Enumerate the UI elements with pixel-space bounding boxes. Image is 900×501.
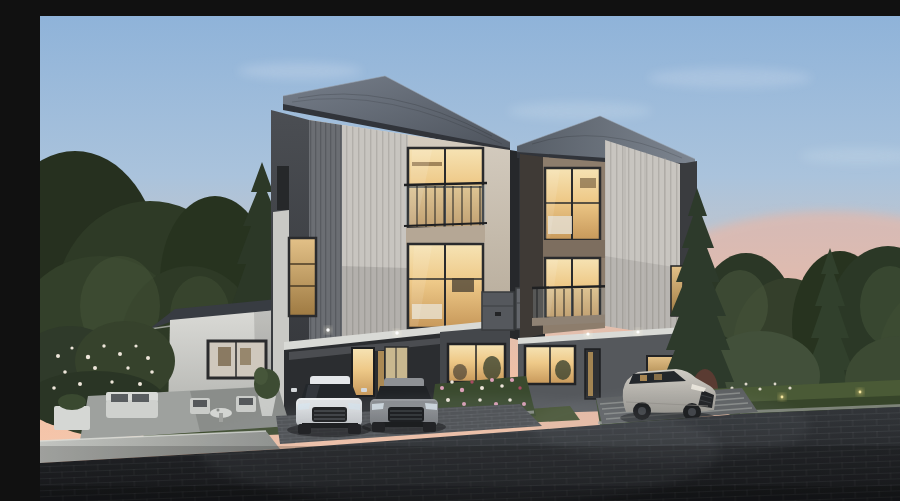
- left-ground-window: [448, 344, 505, 382]
- left-townhouse: [271, 76, 510, 420]
- side-wall-window: [277, 166, 289, 210]
- left-tall-window: [289, 238, 316, 316]
- left-spandrel: [406, 225, 485, 245]
- left-balcony: [404, 183, 487, 227]
- planter-bench: [54, 394, 90, 430]
- left-floor2-window: [408, 244, 483, 328]
- right-spandrel: [543, 240, 605, 258]
- right-floor3-window: [545, 168, 600, 240]
- vignette-bottom: [40, 486, 900, 501]
- right-balcony: [532, 286, 616, 326]
- architectural-rendering: [40, 16, 900, 501]
